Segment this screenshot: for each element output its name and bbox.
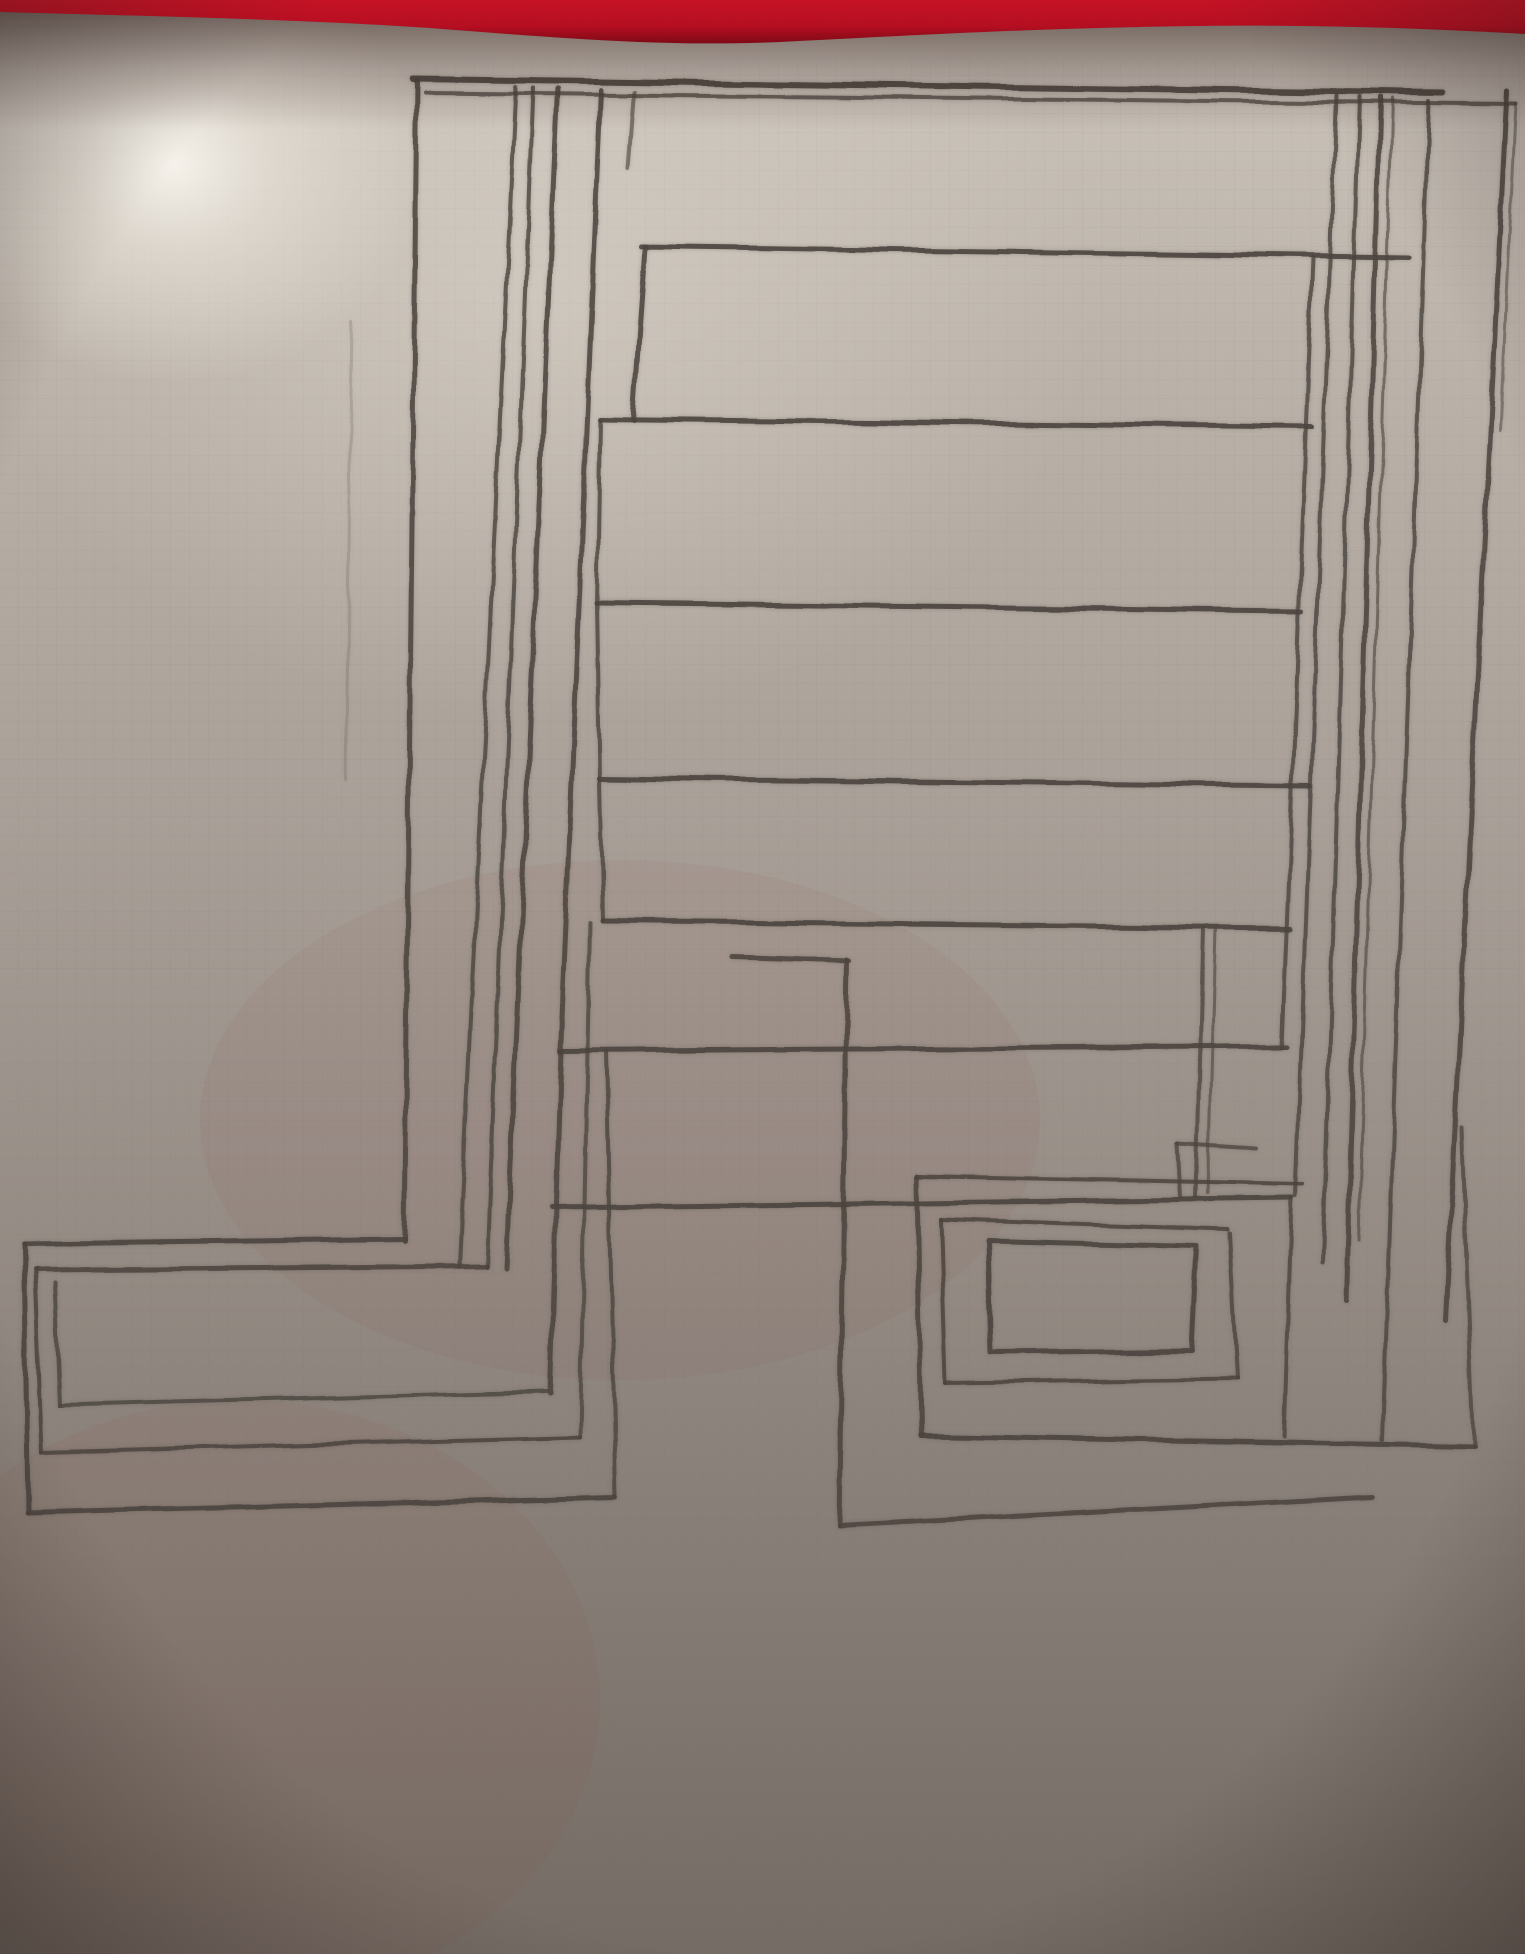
photo-of-pencil-sketch bbox=[0, 0, 1525, 1954]
film-grain bbox=[0, 0, 1525, 1954]
sketch-svg bbox=[0, 0, 1525, 1954]
